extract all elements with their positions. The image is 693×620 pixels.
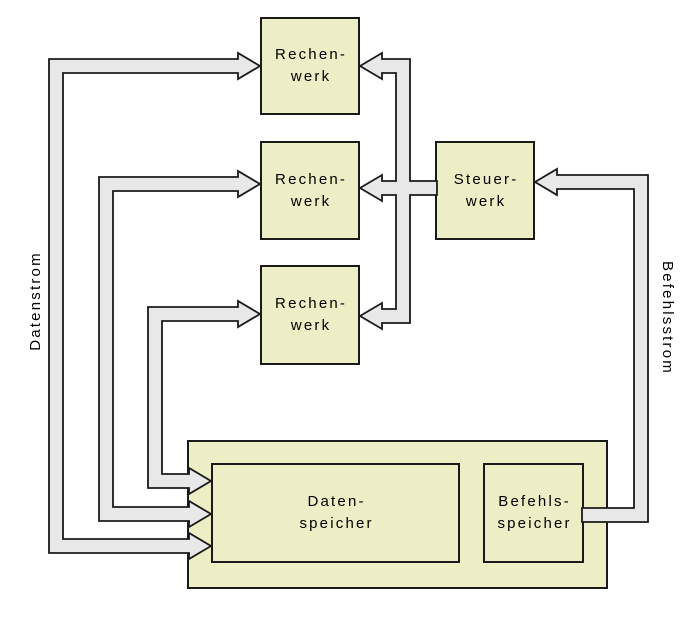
- node-label: werk: [289, 315, 332, 337]
- node-befehlsspeicher: Befehls- speicher: [483, 463, 584, 563]
- instruction-stream-label: Befehlsstrom: [658, 228, 678, 408]
- node-label: speicher: [297, 513, 373, 535]
- node-label: speicher: [495, 513, 571, 535]
- node-label: werk: [464, 191, 507, 213]
- node-label: werk: [289, 191, 332, 213]
- node-label: Rechen-: [273, 169, 347, 191]
- node-label: Rechen-: [273, 44, 347, 66]
- diagram-canvas: Rechen- werk Rechen- werk Rechen- werk S…: [0, 0, 693, 620]
- node-datenspeicher: Daten- speicher: [211, 463, 460, 563]
- node-label: Steuer-: [452, 169, 519, 191]
- node-label: Daten-: [305, 491, 365, 513]
- node-steuerwerk: Steuer- werk: [435, 141, 535, 240]
- data-stream-label: Datenstrom: [25, 211, 45, 391]
- node-label: Rechen-: [273, 293, 347, 315]
- node-rechenwerk-2: Rechen- werk: [260, 141, 360, 240]
- control-bus-arrow: [360, 53, 437, 329]
- node-rechenwerk-3: Rechen- werk: [260, 265, 360, 365]
- node-rechenwerk-1: Rechen- werk: [260, 17, 360, 115]
- node-label: Befehls-: [496, 491, 571, 513]
- node-label: werk: [289, 66, 332, 88]
